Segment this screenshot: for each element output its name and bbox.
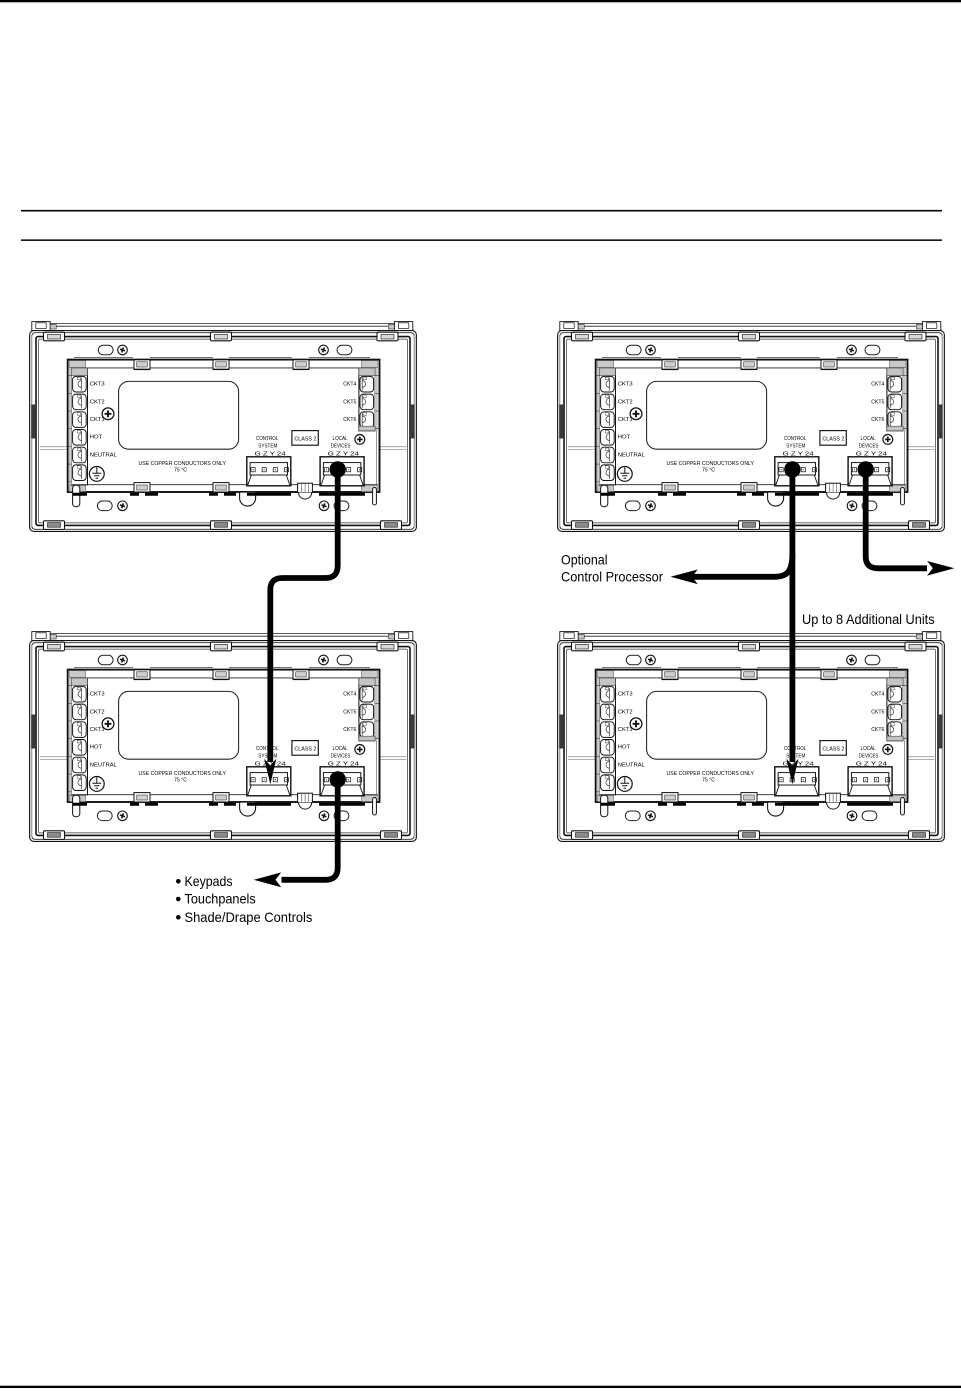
svg-text:Up to 8 Additional Units: Up to 8 Additional Units: [802, 611, 935, 627]
svg-text:Shade/Drape Controls: Shade/Drape Controls: [185, 909, 313, 925]
svg-text:Optional: Optional: [561, 552, 608, 568]
svg-text:Touchpanels: Touchpanels: [185, 891, 256, 907]
svg-text:Keypads: Keypads: [185, 873, 233, 889]
svg-text:Control Processor: Control Processor: [561, 569, 663, 585]
